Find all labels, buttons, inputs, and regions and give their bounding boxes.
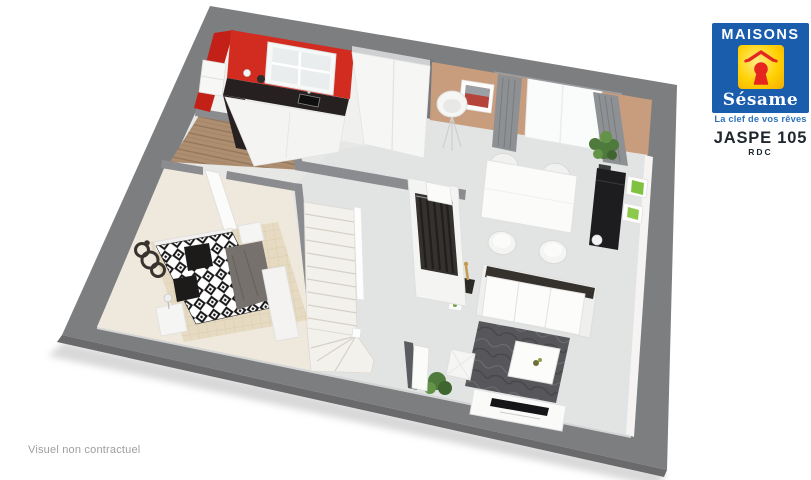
floorplan-3d-render — [0, 0, 811, 480]
kitchen-kettle — [244, 70, 251, 77]
brand-tagline: La clef de vos rêves — [703, 114, 811, 124]
sofa-cushion — [482, 276, 519, 322]
model-floor-level: RDC — [712, 147, 809, 157]
keyhole-icon — [741, 47, 781, 87]
deco-sphere — [592, 235, 602, 245]
bed-pillow — [184, 243, 213, 271]
brand-logo: MAISONS Sésame — [712, 23, 809, 113]
model-name: JASPE 105 — [712, 129, 809, 148]
logo-yellow-panel — [738, 45, 784, 89]
open-closet — [408, 178, 466, 306]
brand-name-top: MAISONS — [721, 28, 799, 43]
tall-cabinet — [352, 52, 430, 158]
disclaimer-text: Visuel non contractuel — [28, 444, 140, 456]
flyer-page: MAISONS Sésame La clef de vos rêves JASP… — [0, 0, 811, 480]
kitchen-faucet — [307, 90, 310, 93]
sofa-cushion — [545, 288, 585, 335]
brand-name-bottom: Sésame — [723, 92, 798, 109]
sofa-cushion — [514, 282, 551, 328]
south-door — [404, 341, 429, 391]
stair-newel — [352, 328, 361, 338]
kitchen-small-appliance — [257, 75, 265, 83]
nightstand — [238, 222, 264, 244]
bedside-lamp — [164, 294, 172, 302]
